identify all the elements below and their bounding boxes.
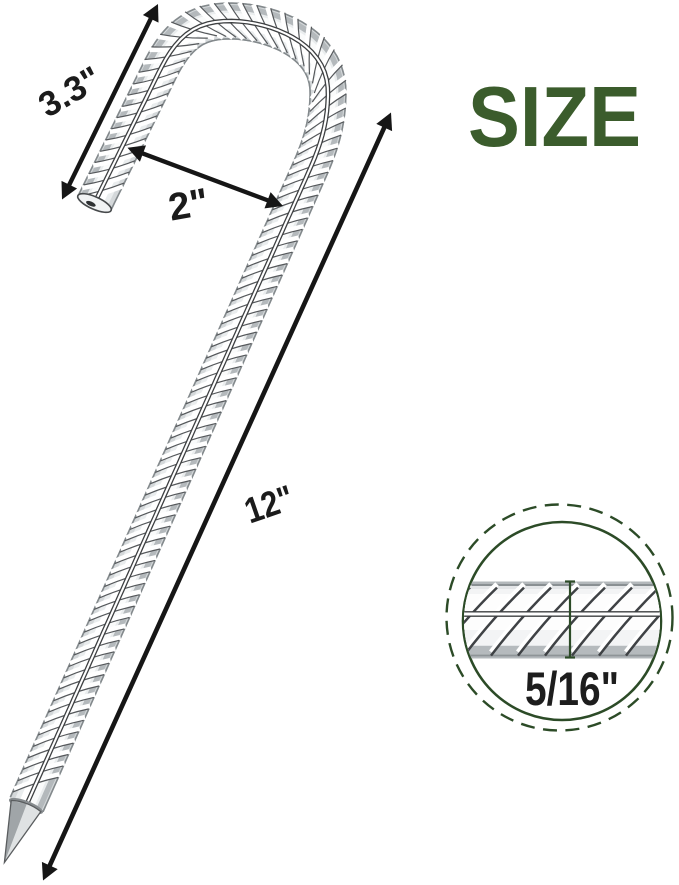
svg-text:5/16": 5/16"	[525, 662, 619, 715]
svg-text:2": 2"	[165, 180, 212, 229]
svg-text:SIZE: SIZE	[468, 70, 641, 165]
